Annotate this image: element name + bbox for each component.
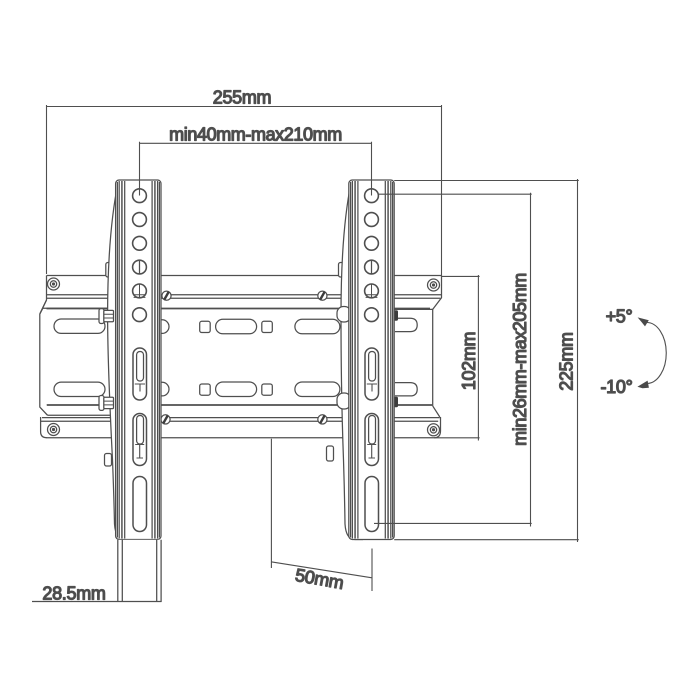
svg-text:+5°: +5° [606,307,633,327]
svg-text:min26mm-max205mm: min26mm-max205mm [510,273,530,446]
svg-text:225mm: 225mm [557,332,577,391]
svg-text:50mm: 50mm [294,565,346,593]
svg-text:28.5mm: 28.5mm [42,584,105,604]
svg-text:-10°: -10° [600,377,632,397]
svg-text:min40mm-max210mm: min40mm-max210mm [169,125,342,145]
svg-text:102mm: 102mm [459,332,479,391]
svg-text:255mm: 255mm [213,88,272,108]
